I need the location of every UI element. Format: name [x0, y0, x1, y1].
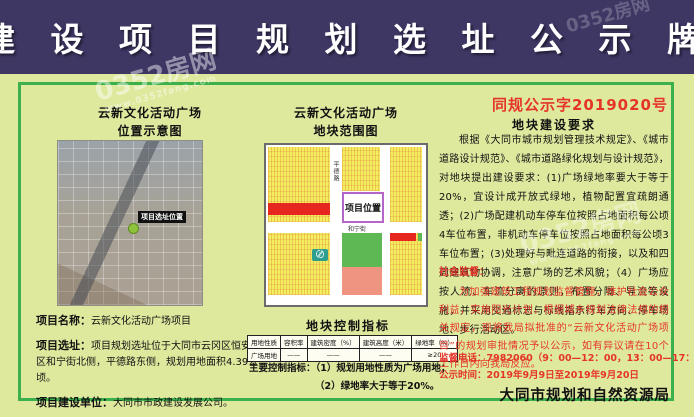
plot-map-title: 云新文化活动广场 地块范围图: [260, 104, 432, 140]
green-space-parcel: [342, 233, 382, 267]
satellite-location-map: 项目选址位置: [57, 140, 203, 306]
plot-range-map: 平德路 和宁街 项目位置 〄: [264, 143, 428, 307]
site-marker-dot-icon: [128, 223, 139, 234]
road-label-vertical: 平德路: [331, 161, 340, 182]
contact-info: 监督电话：7982060（9：00—12：00，13：00—17：00） 公示时…: [439, 350, 671, 384]
road-bottom: [266, 295, 422, 301]
parcel: [342, 147, 380, 191]
project-info: 项目名称：云新文化活动广场项目 项目选址：项目规划选址位于大同市云冈区恒安新区和…: [36, 312, 264, 417]
notes-line-1: 主要控制指标：（1）规划用地性质为广场用地；: [249, 360, 459, 378]
period-line: 公示时间：2019年9月9日至2019年9月20日: [439, 367, 671, 384]
red-zone-strip: [390, 233, 416, 241]
notes-line-2: （2）绿地率大于等于20%。: [249, 378, 459, 396]
road-label-horizontal: 和宁街: [348, 224, 366, 233]
green-sliver: [418, 233, 422, 241]
residential-parcel: [342, 267, 382, 295]
indicators-header-row: 用地性质 容积率 建筑密度（%） 建筑高度（米） 绿地率（%）: [248, 336, 458, 349]
parcel: [390, 233, 422, 295]
project-name-row: 项目名称：云新文化活动广场项目: [36, 312, 264, 330]
road-horizontal: [266, 222, 422, 233]
project-site-row: 项目选址：项目规划选址位于大同市云冈区恒安新区和宁街北侧，平德路东侧，规划用地面…: [36, 337, 264, 387]
banner: 建 设 项 目 规 划 选 址 公 示 牌: [0, 0, 694, 74]
issuing-agency: 大同市规划和自然资源局: [430, 384, 670, 405]
site-location-label: 项目选址位置: [138, 211, 186, 223]
watermark-logo-icon: 〄: [312, 249, 328, 261]
control-indicator-notes: 主要控制指标：（1）规划用地性质为广场用地； （2）绿地率大于等于20%。: [249, 360, 459, 396]
phone-line: 监督电话：7982060（9：00—12：00，13：00—17：00）: [439, 350, 671, 367]
project-builder-row: 项目建设单位：大同市市政建设发展公司。: [36, 394, 264, 412]
project-location-box: 项目位置: [342, 192, 384, 223]
parcel: [390, 147, 422, 222]
document-number: 同规公示字2019020号: [440, 94, 668, 115]
indicators-table: 用地性质 容积率 建筑密度（%） 建筑高度（米） 绿地率（%） 广场用地 —— …: [247, 335, 458, 362]
banner-title: 建 设 项 目 规 划 选 址 公 示 牌: [0, 13, 694, 61]
parcel: [268, 233, 330, 295]
supervision-heading: 社会监督：: [439, 264, 669, 282]
indicators-heading: 地块控制指标: [262, 317, 434, 334]
red-zone-strip: [268, 203, 330, 215]
notice-board: 建 设 项 目 规 划 选 址 公 示 牌 云新文化活动广场 位置示意图 项目选…: [0, 0, 694, 417]
left-map-title: 云新文化活动广场 位置示意图: [52, 104, 248, 140]
